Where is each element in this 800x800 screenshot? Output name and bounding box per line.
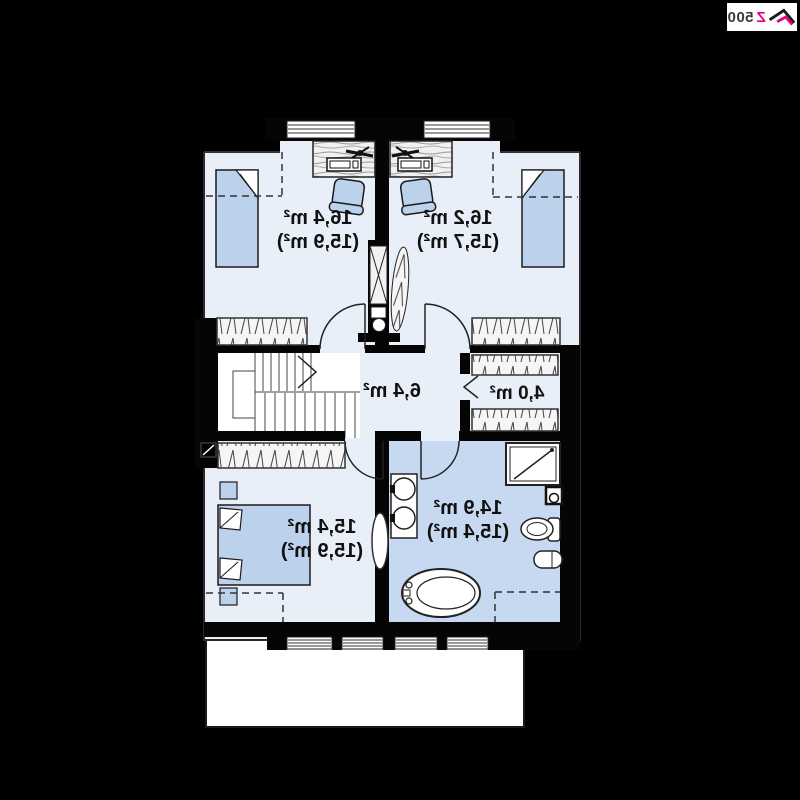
- balcony: [206, 637, 524, 727]
- bed: [216, 170, 258, 267]
- radiator: [372, 513, 388, 569]
- nightstand: [220, 482, 237, 499]
- svg-text:16,2 m²: 16,2 m²: [423, 207, 492, 229]
- staircase: [218, 353, 360, 438]
- nightstand: [220, 588, 237, 605]
- floor-plan-page: Z500: [0, 0, 800, 800]
- svg-text:6,4 m²: 6,4 m²: [363, 380, 421, 402]
- svg-text:(15,9 m²): (15,9 m²): [277, 231, 359, 253]
- svg-text:(15,7 m²): (15,7 m²): [417, 231, 499, 253]
- vent-marker: [201, 443, 216, 457]
- svg-text:14,9 m²: 14,9 m²: [433, 497, 502, 519]
- svg-text:(15,4 m²): (15,4 m²): [427, 521, 509, 543]
- floor-plan-drawing: 16,4 m² (15,9 m²) 16,2 m² (15,7 m²) 6,4 …: [0, 0, 800, 800]
- bidet: [534, 551, 562, 568]
- water-heater: [546, 487, 562, 504]
- svg-text:(15,9 m²): (15,9 m²): [281, 540, 363, 562]
- toilet: [521, 518, 560, 541]
- bathtub: [402, 569, 480, 617]
- shower: [506, 443, 560, 485]
- svg-text:15,4 m²: 15,4 m²: [287, 516, 356, 538]
- svg-text:16,4 m²: 16,4 m²: [283, 207, 352, 229]
- room-label-closet: 4,0 m²: [490, 383, 545, 404]
- svg-text:4,0 m²: 4,0 m²: [490, 383, 545, 404]
- sink-counter: [390, 474, 417, 538]
- room-label-hall: 6,4 m²: [363, 380, 421, 402]
- bed: [522, 170, 564, 267]
